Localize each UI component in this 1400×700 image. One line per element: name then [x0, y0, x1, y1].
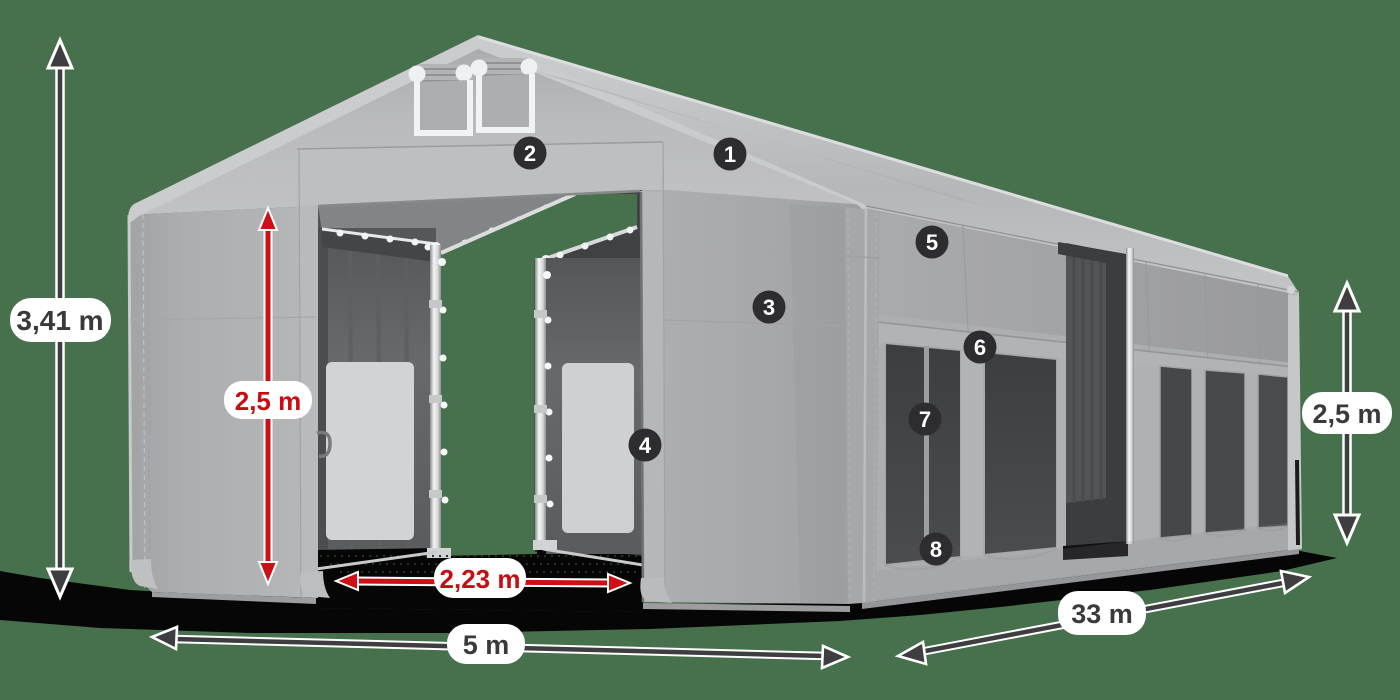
svg-text:2: 2	[524, 141, 536, 166]
svg-text:5 m: 5 m	[463, 630, 510, 660]
svg-text:7: 7	[919, 407, 931, 432]
svg-text:2,23 m: 2,23 m	[440, 564, 521, 594]
svg-text:3,41 m: 3,41 m	[16, 305, 103, 336]
svg-text:2,5 m: 2,5 m	[1312, 399, 1381, 429]
svg-text:2,5 m: 2,5 m	[235, 386, 302, 416]
svg-text:3: 3	[763, 295, 775, 320]
svg-text:1: 1	[724, 142, 736, 167]
svg-text:8: 8	[930, 537, 942, 562]
svg-text:33 m: 33 m	[1071, 599, 1133, 629]
svg-text:4: 4	[639, 433, 652, 458]
svg-text:6: 6	[974, 335, 986, 360]
svg-text:5: 5	[926, 230, 938, 255]
